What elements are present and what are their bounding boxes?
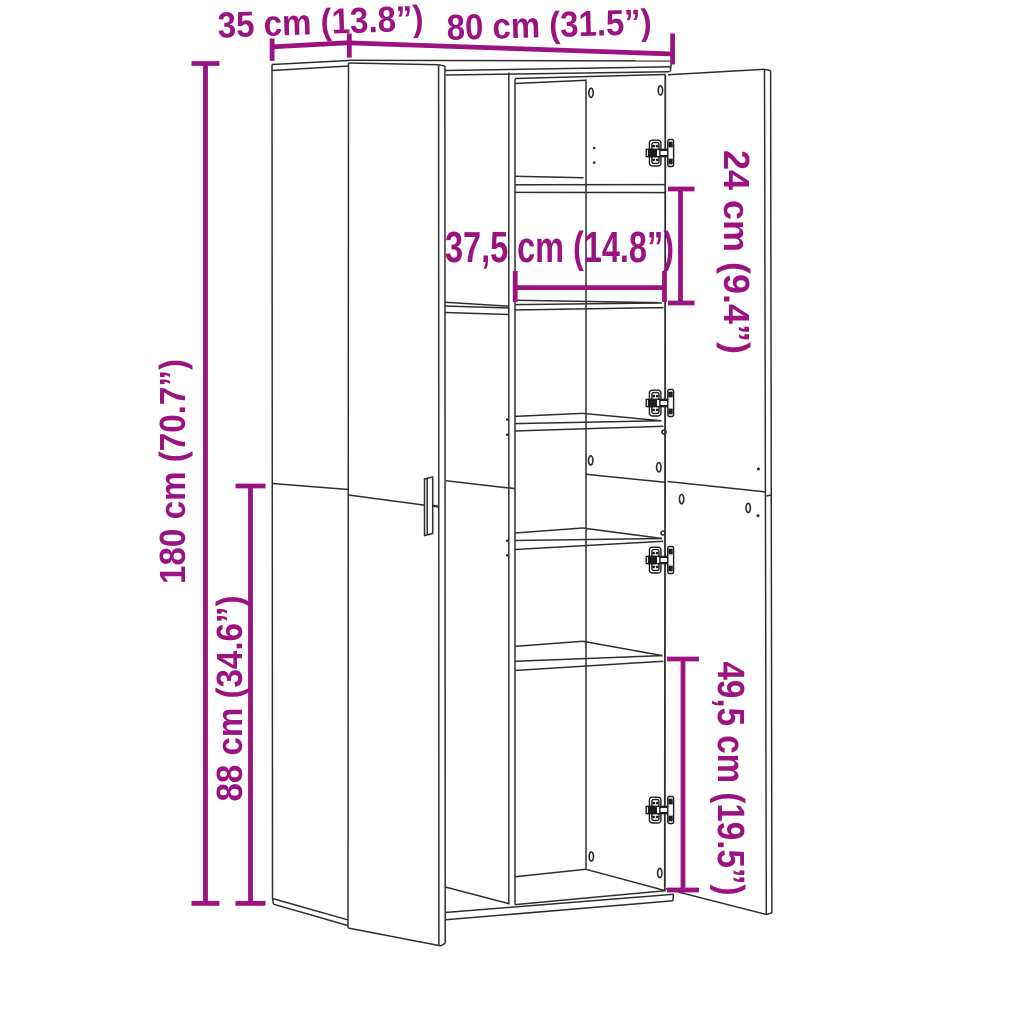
svg-text:24 cm (9.4”): 24 cm (9.4”)	[716, 150, 757, 354]
svg-text:37,5 cm (14.8”): 37,5 cm (14.8”)	[445, 223, 674, 272]
svg-text:35 cm (13.8”): 35 cm (13.8”)	[217, 0, 424, 46]
svg-text:180 cm (70.7”): 180 cm (70.7”)	[152, 359, 193, 584]
svg-text:49,5 cm (19.5”): 49,5 cm (19.5”)	[709, 662, 751, 896]
svg-text:80 cm (31.5”): 80 cm (31.5”)	[446, 1, 652, 48]
svg-text:88 cm (34.6”): 88 cm (34.6”)	[209, 596, 250, 802]
